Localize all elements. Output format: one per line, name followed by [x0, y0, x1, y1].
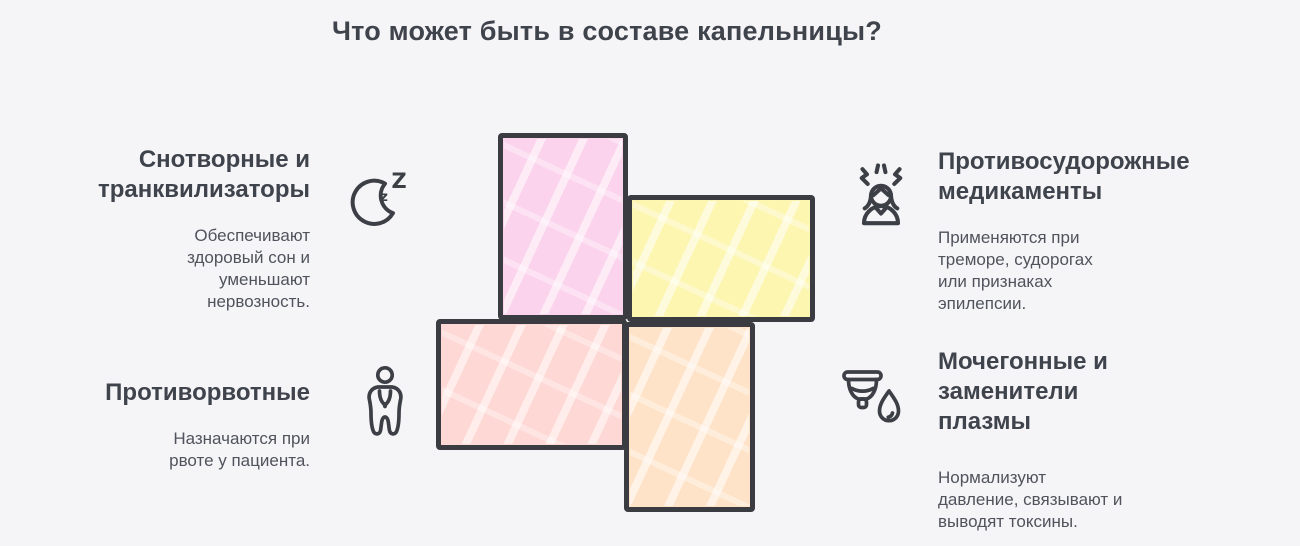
item-description: Нормализуют давление, связывают и выводя…: [938, 467, 1128, 533]
cross-block-orange: [624, 322, 755, 512]
page-title: Что может быть в составе капельницы?: [0, 16, 1214, 47]
cross-block-pink: [498, 133, 628, 320]
cross-block-yellow: [627, 195, 815, 322]
item-description: Применяются при треморе, судорогах или п…: [938, 227, 1120, 315]
item-diuretics: Мочегонные и заменители плазмы Нормализу…: [938, 347, 1228, 533]
item-heading: Снотворные и транквилизаторы: [48, 145, 310, 205]
cross-block-salmon: [436, 319, 627, 450]
sleep-moon-icon: z Z: [344, 161, 416, 235]
svg-text:z: z: [380, 189, 388, 205]
item-heading: Мочегонные и заменители плазмы: [938, 347, 1148, 437]
infographic-canvas: Что может быть в составе капельницы? Сно…: [0, 0, 1300, 546]
item-description: Обеспечивают здоровый сон и уменьшают не…: [142, 225, 310, 313]
item-sedatives: Снотворные и транквилизаторы Обеспечиваю…: [20, 145, 310, 313]
cup-with-drop-icon: [840, 364, 906, 434]
tremor-person-icon: [844, 157, 918, 239]
svg-text:Z: Z: [392, 169, 407, 193]
item-description: Назначаются при рвоте у пациента.: [132, 428, 310, 472]
item-heading: Противорвотные: [20, 378, 310, 408]
nausea-person-icon: [359, 365, 411, 439]
item-antiemetics: Противорвотные Назначаются при рвоте у п…: [20, 378, 310, 472]
item-heading: Противосудорожные медикаменты: [938, 147, 1223, 207]
item-anticonvulsants: Противосудорожные медикаменты Применяютс…: [938, 147, 1238, 315]
